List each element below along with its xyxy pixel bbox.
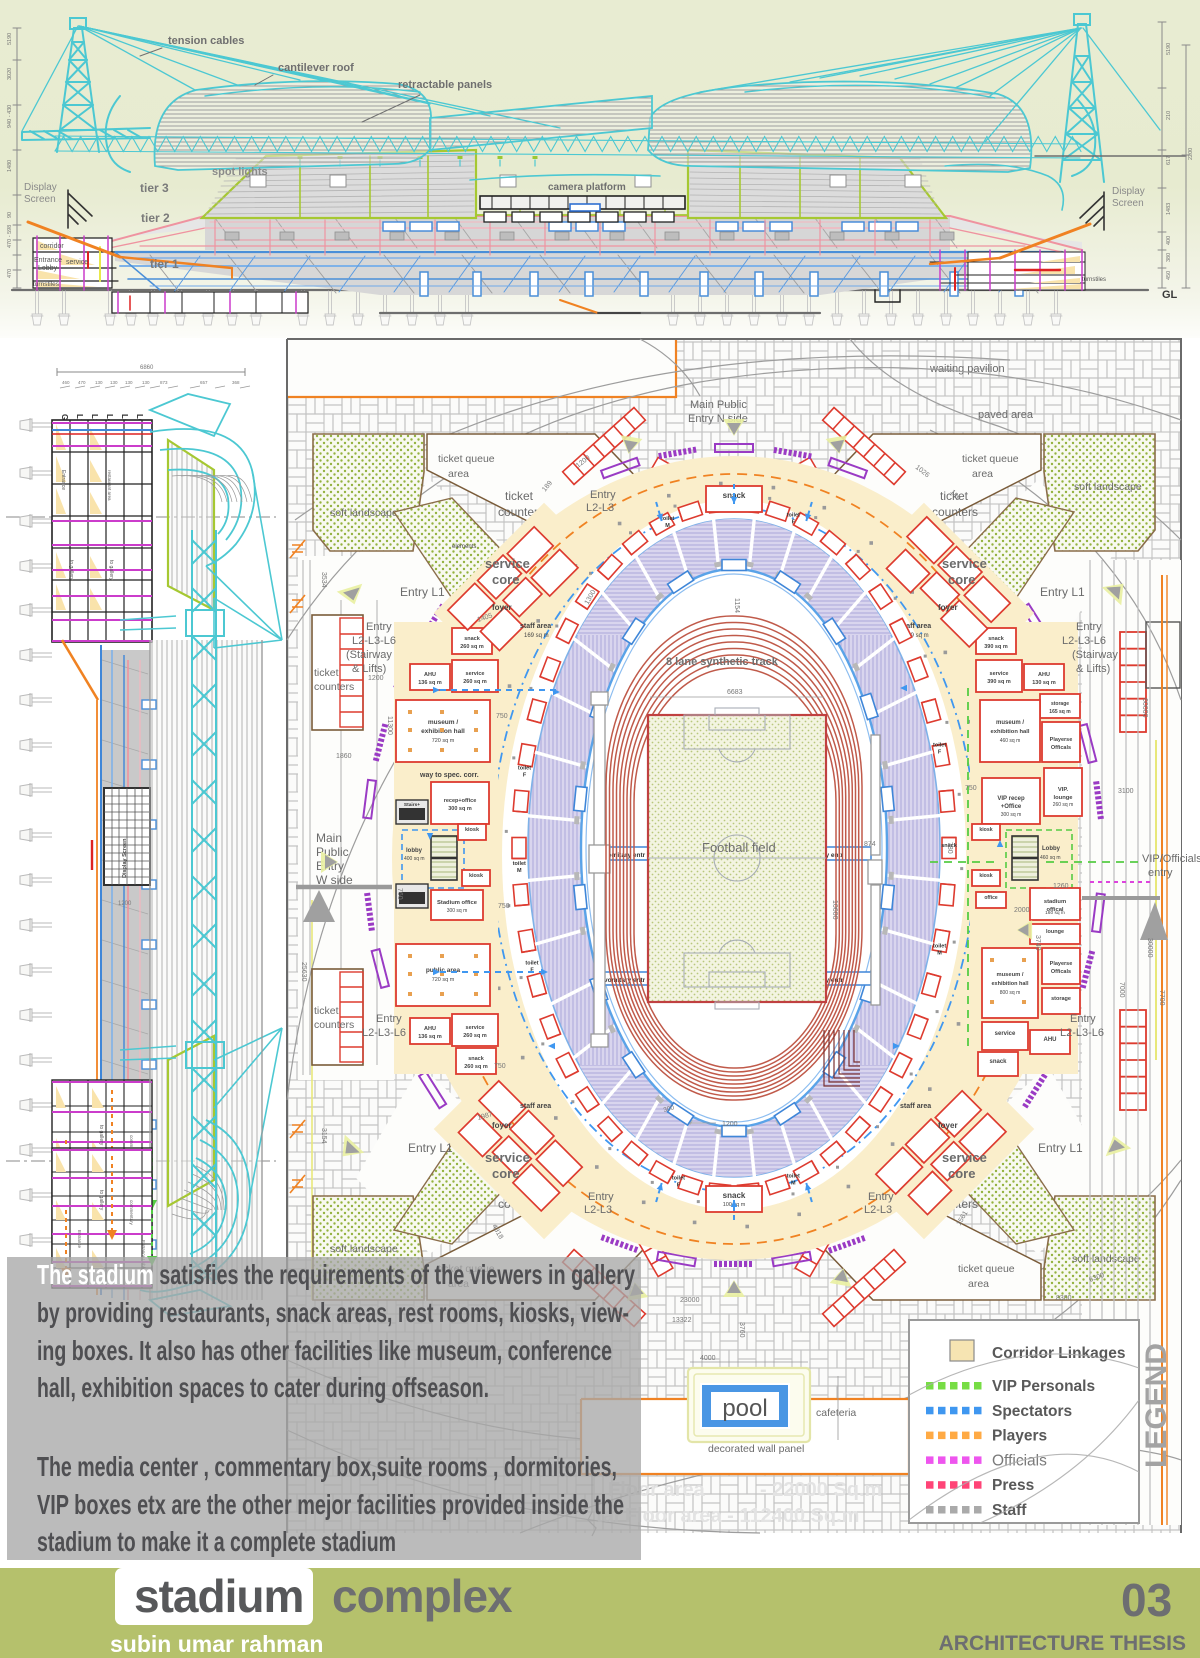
svg-text:460 sq m: 460 sq m bbox=[1040, 855, 1061, 861]
svg-text:Playerse: Playerse bbox=[1050, 737, 1073, 743]
svg-text:lobby: lobby bbox=[406, 848, 423, 854]
svg-text:staff area: staff area bbox=[520, 1103, 551, 1110]
svg-text:AHU: AHU bbox=[424, 1026, 436, 1032]
svg-text:10600: 10600 bbox=[831, 900, 838, 920]
svg-text:area: area bbox=[448, 468, 469, 480]
svg-text:260 sq m: 260 sq m bbox=[460, 644, 484, 650]
svg-text:300 sq m: 300 sq m bbox=[447, 908, 468, 914]
svg-text:core: core bbox=[948, 1166, 975, 1181]
svg-text:130: 130 bbox=[142, 380, 150, 385]
svg-text:Entry: Entry bbox=[590, 489, 616, 501]
svg-text:complex: complex bbox=[332, 1570, 513, 1622]
svg-text:940 - 430: 940 - 430 bbox=[7, 105, 13, 128]
svg-text:210: 210 bbox=[1166, 111, 1172, 120]
svg-text:03: 03 bbox=[1121, 1574, 1172, 1626]
svg-text:L2-L3-L6: L2-L3-L6 bbox=[1060, 1027, 1104, 1039]
svg-text:service: service bbox=[66, 259, 88, 266]
svg-text:to gallery: to gallery bbox=[98, 1190, 104, 1211]
svg-text:Screen: Screen bbox=[1112, 198, 1144, 209]
svg-text:soft landscape: soft landscape bbox=[330, 507, 398, 519]
svg-text:Screen: Screen bbox=[24, 194, 56, 205]
svg-text:657: 657 bbox=[200, 380, 208, 385]
svg-text:corridor: corridor bbox=[40, 243, 64, 250]
svg-text:toilet: toilet bbox=[672, 1175, 685, 1181]
svg-text:toilet: toilet bbox=[518, 766, 531, 772]
svg-text:260 sq m: 260 sq m bbox=[1053, 802, 1074, 808]
svg-text:subin umar rahman: subin umar rahman bbox=[110, 1631, 323, 1657]
svg-text:470 - 598: 470 - 598 bbox=[7, 225, 13, 248]
svg-text:kiosk: kiosk bbox=[465, 827, 480, 833]
svg-text:ticket queue: ticket queue bbox=[438, 453, 495, 465]
svg-text:toilet: toilet bbox=[525, 961, 538, 967]
svg-text:service: service bbox=[466, 671, 485, 677]
svg-text:617: 617 bbox=[1166, 156, 1172, 165]
svg-text:Officals: Officals bbox=[1051, 745, 1071, 751]
svg-text:M: M bbox=[791, 1181, 796, 1187]
svg-text:460 sq m: 460 sq m bbox=[1000, 738, 1021, 744]
svg-text:Main Public: Main Public bbox=[690, 399, 747, 411]
svg-text:turnstiles: turnstiles bbox=[1082, 277, 1106, 283]
svg-text:service: service bbox=[466, 1025, 485, 1031]
svg-text:core: core bbox=[948, 572, 975, 587]
svg-text:stadium to make it a complete: stadium to make it a complete stadium bbox=[37, 1526, 396, 1557]
svg-text:office: office bbox=[984, 895, 998, 901]
svg-text:AHU: AHU bbox=[424, 672, 436, 678]
svg-text:Entry L1: Entry L1 bbox=[1040, 585, 1085, 599]
svg-text:Stairs+: Stairs+ bbox=[404, 802, 420, 808]
svg-text:core: core bbox=[492, 1166, 519, 1181]
svg-text:ARCHITECTURE THESIS: ARCHITECTURE THESIS bbox=[939, 1632, 1186, 1655]
svg-text:3154: 3154 bbox=[320, 1128, 327, 1144]
svg-text:3760: 3760 bbox=[738, 1322, 745, 1338]
svg-text:counters: counters bbox=[932, 505, 978, 519]
svg-text:tier 2: tier 2 bbox=[141, 211, 170, 225]
svg-text:Football field: Football field bbox=[702, 840, 776, 855]
svg-text:470: 470 bbox=[78, 380, 86, 385]
svg-text:core: core bbox=[492, 572, 519, 587]
svg-text:Entry L1: Entry L1 bbox=[1038, 1141, 1083, 1155]
svg-text:service: service bbox=[485, 1150, 530, 1165]
svg-text:3100: 3100 bbox=[1118, 788, 1134, 795]
svg-text:760: 760 bbox=[396, 888, 403, 900]
svg-text:entry: entry bbox=[1148, 867, 1173, 879]
svg-text:- 22000 Sq.m: - 22000 Sq.m bbox=[760, 1479, 882, 1501]
svg-text:ticket queue: ticket queue bbox=[958, 1263, 1015, 1275]
svg-text:restaurant area: restaurant area bbox=[107, 470, 112, 501]
svg-text:7700: 7700 bbox=[1158, 990, 1165, 1006]
svg-text:way to spec. corr.: way to spec. corr. bbox=[419, 772, 479, 779]
svg-text:25630: 25630 bbox=[300, 962, 307, 982]
svg-text:Entrance: Entrance bbox=[34, 257, 62, 264]
svg-text:tier 1: tier 1 bbox=[150, 257, 179, 271]
svg-text:470: 470 bbox=[7, 269, 13, 278]
svg-text:260 sq m: 260 sq m bbox=[464, 1064, 488, 1070]
svg-text:recep+office: recep+office bbox=[444, 798, 477, 804]
svg-text:snack: snack bbox=[988, 636, 1005, 642]
svg-text:L2-L3-L6: L2-L3-L6 bbox=[362, 1027, 406, 1039]
svg-text:lounge: lounge bbox=[1046, 929, 1064, 935]
svg-text:museum /: museum / bbox=[428, 719, 459, 726]
svg-text:390 sq m: 390 sq m bbox=[987, 679, 1011, 685]
svg-text:M: M bbox=[665, 523, 670, 529]
svg-text:750: 750 bbox=[498, 903, 510, 910]
svg-text:VIP Personals: VIP Personals bbox=[992, 1378, 1095, 1395]
svg-text:exhibition hall: exhibition hall bbox=[991, 729, 1030, 735]
svg-text:toilet: toilet bbox=[787, 512, 800, 518]
svg-text:1483: 1483 bbox=[1166, 203, 1172, 215]
svg-text:GL: GL bbox=[1162, 289, 1178, 301]
svg-text:toilet: toilet bbox=[933, 742, 946, 748]
svg-text:snack: snack bbox=[723, 1191, 746, 1200]
svg-text:Players: Players bbox=[992, 1428, 1047, 1445]
svg-text:873: 873 bbox=[160, 380, 168, 385]
svg-text:300 sq m: 300 sq m bbox=[448, 806, 472, 812]
svg-text:720 sq m: 720 sq m bbox=[432, 738, 455, 744]
svg-text:ing boxes. It also has other f: ing boxes. It also has other facilities … bbox=[37, 1335, 612, 1366]
svg-text:service: service bbox=[942, 556, 987, 571]
svg-text:The media center , commentary: The media center , commentary box,suite … bbox=[37, 1451, 617, 1482]
svg-text:Entry: Entry bbox=[1070, 1013, 1096, 1025]
svg-text:Lobby: Lobby bbox=[38, 265, 58, 272]
svg-text:874: 874 bbox=[864, 841, 876, 848]
svg-text:Entry: Entry bbox=[588, 1191, 614, 1203]
svg-text:service: service bbox=[942, 1150, 987, 1165]
svg-text:60000: 60000 bbox=[1141, 698, 1148, 718]
svg-text:400: 400 bbox=[1166, 236, 1172, 245]
svg-text:service: service bbox=[485, 556, 530, 571]
svg-text:720 sq m: 720 sq m bbox=[432, 977, 455, 983]
svg-text:Lobby: Lobby bbox=[1042, 846, 1061, 852]
svg-text:ticket queue: ticket queue bbox=[962, 453, 1019, 465]
svg-text:counters: counters bbox=[314, 1019, 354, 1031]
svg-text:130: 130 bbox=[125, 380, 133, 385]
svg-text:spot lights: spot lights bbox=[212, 166, 268, 178]
svg-text:L2-L3: L2-L3 bbox=[586, 502, 614, 514]
svg-text:11300: 11300 bbox=[386, 716, 393, 735]
svg-text:400 sq m: 400 sq m bbox=[404, 856, 425, 862]
svg-text:Entry: Entry bbox=[868, 1191, 894, 1203]
svg-text:750: 750 bbox=[494, 1063, 506, 1070]
svg-text:foyer: foyer bbox=[938, 603, 958, 612]
svg-text:460: 460 bbox=[62, 380, 70, 385]
svg-text:tier 3: tier 3 bbox=[140, 181, 169, 195]
svg-text:450: 450 bbox=[1166, 271, 1172, 280]
svg-text:Display: Display bbox=[1112, 186, 1145, 197]
svg-text:snack: snack bbox=[464, 636, 481, 642]
svg-text:Press: Press bbox=[992, 1477, 1034, 1494]
svg-text:paved area: paved area bbox=[978, 409, 1034, 421]
svg-text:soft landscape: soft landscape bbox=[1074, 481, 1142, 493]
svg-text:tension cables: tension cables bbox=[168, 35, 244, 47]
svg-text:130: 130 bbox=[95, 380, 103, 385]
svg-text:LEGEND: LEGEND bbox=[1140, 1343, 1173, 1468]
svg-text:780: 780 bbox=[946, 842, 953, 854]
svg-text:service: service bbox=[995, 1031, 1016, 1037]
svg-text:130 sq m: 130 sq m bbox=[1032, 680, 1056, 686]
svg-text:5190: 5190 bbox=[1166, 43, 1172, 55]
svg-text:5190: 5190 bbox=[7, 33, 13, 45]
svg-text:storage: storage bbox=[1051, 996, 1071, 1002]
svg-text:turnstiles: turnstiles bbox=[33, 281, 60, 288]
svg-text:foyer: foyer bbox=[938, 1121, 958, 1130]
svg-text:museum /: museum / bbox=[996, 720, 1024, 726]
svg-text:169 sq m: 169 sq m bbox=[524, 633, 549, 639]
svg-text:L2-L3: L2-L3 bbox=[584, 1204, 612, 1216]
svg-text:toilet: toilet bbox=[661, 516, 674, 522]
svg-text:staff area: staff area bbox=[900, 1103, 931, 1110]
svg-text:Entry L1: Entry L1 bbox=[408, 1141, 453, 1155]
svg-text:3740: 3740 bbox=[1034, 935, 1041, 951]
svg-text:to gallery: to gallery bbox=[98, 1125, 104, 1146]
svg-text:elements: elements bbox=[452, 544, 476, 550]
svg-text:Stadium office: Stadium office bbox=[437, 900, 478, 906]
svg-text:260 sq m: 260 sq m bbox=[463, 679, 487, 685]
svg-text:soft landscape: soft landscape bbox=[1072, 1253, 1140, 1265]
svg-text:160 sq m: 160 sq m bbox=[1045, 910, 1065, 916]
svg-text:13322: 13322 bbox=[672, 1317, 692, 1324]
svg-text:800 sq m: 800 sq m bbox=[1000, 990, 1021, 996]
svg-text:7000: 7000 bbox=[1118, 982, 1125, 998]
svg-text:300 sq m: 300 sq m bbox=[1001, 812, 1022, 818]
svg-text:foyer: foyer bbox=[492, 1121, 512, 1130]
svg-text:VIP boxes etx are the other me: VIP boxes etx are the other mejor facili… bbox=[37, 1489, 624, 1520]
svg-text:ticket: ticket bbox=[314, 1005, 339, 1017]
svg-text:stadium: stadium bbox=[134, 1570, 303, 1622]
svg-text:AHU: AHU bbox=[1044, 1037, 1057, 1043]
svg-text:2000: 2000 bbox=[1014, 907, 1030, 914]
svg-text:cafeteria: cafeteria bbox=[816, 1407, 856, 1419]
svg-text:lounge: lounge bbox=[1054, 795, 1074, 801]
svg-text:8 lane synthetic track: 8 lane synthetic track bbox=[666, 656, 779, 668]
svg-text:VIP/Officials: VIP/Officials bbox=[1142, 853, 1200, 865]
svg-text:ticket: ticket bbox=[505, 489, 534, 503]
svg-text:VIP recep: VIP recep bbox=[997, 796, 1025, 802]
svg-text:area: area bbox=[968, 1278, 989, 1290]
svg-text:136 sq m: 136 sq m bbox=[418, 1034, 442, 1040]
svg-text:service: service bbox=[990, 671, 1009, 677]
svg-text:camera platform: camera platform bbox=[548, 182, 626, 193]
svg-text:1200: 1200 bbox=[722, 1121, 738, 1128]
svg-text:Entrance: Entrance bbox=[77, 1230, 82, 1249]
svg-text:kiosk: kiosk bbox=[469, 873, 484, 879]
svg-text:to gallery: to gallery bbox=[68, 560, 74, 581]
svg-text:foyer: foyer bbox=[492, 603, 512, 612]
svg-text:136 sq m: 136 sq m bbox=[418, 680, 442, 686]
svg-text:by providing restaurants, snac: by providing restaurants, snack areas, r… bbox=[37, 1297, 629, 1328]
svg-text:165 sq m: 165 sq m bbox=[1049, 709, 1071, 715]
svg-text:M: M bbox=[517, 868, 522, 874]
svg-text:30000: 30000 bbox=[1146, 938, 1153, 958]
svg-text:380: 380 bbox=[1166, 253, 1172, 262]
svg-text:1154: 1154 bbox=[733, 598, 740, 613]
svg-text:1260: 1260 bbox=[1053, 883, 1069, 890]
svg-text:toilet: toilet bbox=[513, 861, 526, 867]
svg-text:kiosk: kiosk bbox=[979, 827, 992, 833]
svg-text:toilet: toilet bbox=[787, 1174, 800, 1180]
svg-text:750: 750 bbox=[965, 785, 977, 792]
svg-text:Entry L1: Entry L1 bbox=[400, 585, 445, 599]
svg-text:snack: snack bbox=[468, 1056, 485, 1062]
svg-text:cantilever roof: cantilever roof bbox=[278, 62, 354, 74]
svg-text:storage: storage bbox=[1051, 701, 1069, 707]
svg-text:Playerse: Playerse bbox=[1050, 961, 1073, 967]
svg-text:Spectators: Spectators bbox=[992, 1403, 1072, 1420]
svg-text:M: M bbox=[937, 951, 942, 957]
svg-text:368: 368 bbox=[232, 380, 240, 385]
svg-text:750: 750 bbox=[496, 713, 508, 720]
svg-text:130: 130 bbox=[110, 380, 118, 385]
svg-text:stadium: stadium bbox=[1044, 899, 1066, 905]
svg-text:6860: 6860 bbox=[140, 365, 154, 371]
svg-text:23000: 23000 bbox=[680, 1297, 700, 1304]
svg-text:Display: Display bbox=[24, 182, 57, 193]
svg-text:4000: 4000 bbox=[700, 1355, 716, 1362]
svg-text:Entrance: Entrance bbox=[60, 470, 66, 490]
svg-text:390 sq m: 390 sq m bbox=[984, 644, 1008, 650]
svg-text:Staff: Staff bbox=[992, 1502, 1027, 1519]
svg-text:kiosk: kiosk bbox=[979, 873, 992, 879]
svg-text:AHU: AHU bbox=[1038, 672, 1050, 678]
svg-text:1200: 1200 bbox=[368, 675, 384, 682]
svg-text:The stadium satisfies the requ: The stadium satisfies the requirements o… bbox=[37, 1259, 635, 1290]
svg-text:ticket: ticket bbox=[314, 667, 339, 679]
svg-text:staff area: staff area bbox=[520, 623, 551, 630]
svg-text:Entry: Entry bbox=[376, 1013, 402, 1025]
svg-text:3020: 3020 bbox=[7, 68, 13, 80]
svg-text:to gallery: to gallery bbox=[108, 560, 114, 581]
svg-text:counters: counters bbox=[314, 681, 354, 693]
svg-text:Officals: Officals bbox=[1051, 969, 1071, 975]
svg-text:6683: 6683 bbox=[727, 689, 743, 696]
svg-text:exhibition hall: exhibition hall bbox=[992, 981, 1029, 987]
svg-text:VIP.: VIP. bbox=[1058, 787, 1069, 793]
svg-text:8300: 8300 bbox=[1056, 1295, 1072, 1302]
svg-text:L2-L3: L2-L3 bbox=[864, 1204, 892, 1216]
svg-text:3534: 3534 bbox=[320, 572, 327, 588]
svg-text:+Office: +Office bbox=[1001, 804, 1022, 810]
svg-text:commentary: commentary bbox=[129, 1200, 134, 1226]
svg-text:90: 90 bbox=[7, 212, 13, 218]
svg-text:1480: 1480 bbox=[7, 160, 13, 172]
svg-text:museum /: museum / bbox=[996, 972, 1023, 978]
svg-text:area: area bbox=[972, 468, 993, 480]
svg-text:decorated wall panel: decorated wall panel bbox=[708, 1443, 804, 1455]
svg-text:pool: pool bbox=[722, 1395, 767, 1422]
svg-text:2200: 2200 bbox=[1188, 148, 1194, 160]
svg-text:toilet: toilet bbox=[933, 944, 946, 950]
svg-text:Display Screen: Display Screen bbox=[122, 838, 128, 878]
svg-text:1860: 1860 bbox=[336, 753, 352, 760]
svg-text:retractable panels: retractable panels bbox=[398, 79, 492, 91]
svg-text:snack: snack bbox=[989, 1059, 1007, 1065]
svg-text:waiting pavilion: waiting pavilion bbox=[929, 363, 1005, 375]
svg-text:hall, exhibition spaces to cat: hall, exhibition spaces to cater during … bbox=[37, 1372, 489, 1403]
svg-text:1200: 1200 bbox=[118, 901, 132, 907]
svg-text:260 sq m: 260 sq m bbox=[463, 1033, 487, 1039]
svg-text:soft landscape: soft landscape bbox=[330, 1243, 398, 1255]
